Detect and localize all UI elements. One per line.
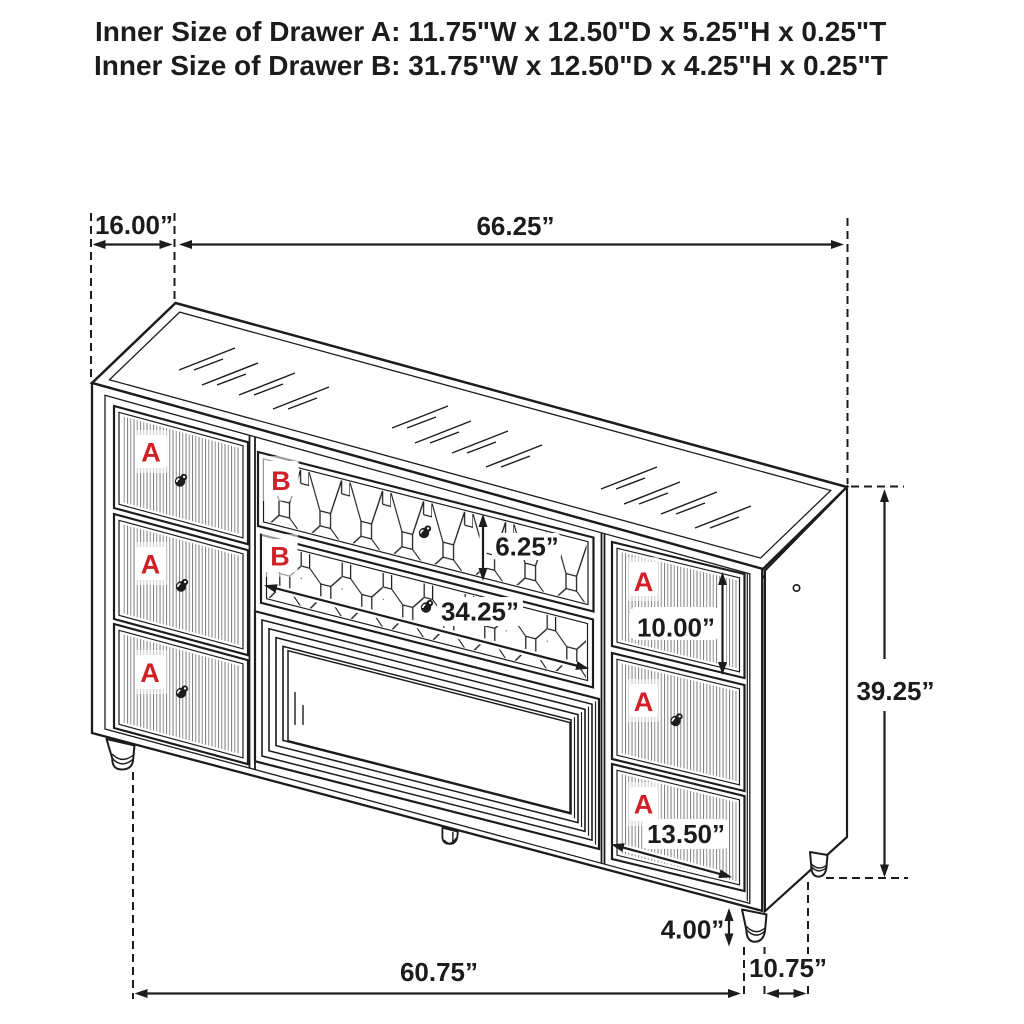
svg-text:A: A bbox=[141, 438, 161, 468]
svg-text:A: A bbox=[141, 550, 161, 580]
svg-text:A: A bbox=[634, 567, 654, 597]
svg-text:4.00”: 4.00” bbox=[661, 915, 725, 945]
svg-text:B: B bbox=[271, 466, 291, 496]
svg-text:10.00”: 10.00” bbox=[637, 613, 715, 643]
svg-text:A: A bbox=[140, 658, 160, 688]
svg-text:10.75”: 10.75” bbox=[749, 953, 827, 983]
svg-text:6.25”: 6.25” bbox=[495, 532, 559, 562]
svg-text:13.50”: 13.50” bbox=[647, 819, 725, 849]
svg-text:Inner Size of Drawer B: 31.75": Inner Size of Drawer B: 31.75"W x 12.50"… bbox=[94, 50, 888, 81]
svg-text:Inner Size of Drawer A: 11.75": Inner Size of Drawer A: 11.75"W x 12.50"… bbox=[95, 16, 886, 47]
svg-text:A: A bbox=[634, 687, 654, 717]
svg-text:66.25”: 66.25” bbox=[476, 211, 554, 241]
svg-text:34.25”: 34.25” bbox=[441, 597, 519, 627]
svg-text:39.25”: 39.25” bbox=[856, 676, 934, 706]
svg-text:A: A bbox=[634, 790, 654, 820]
svg-text:16.00”: 16.00” bbox=[95, 210, 173, 240]
svg-text:60.75”: 60.75” bbox=[400, 957, 478, 987]
svg-text:B: B bbox=[270, 542, 290, 572]
